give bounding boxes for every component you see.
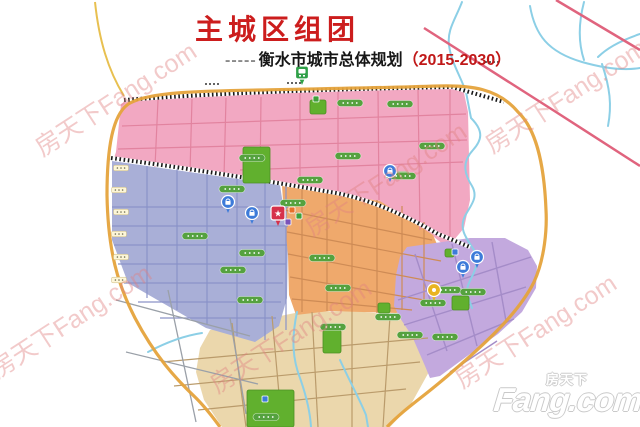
landmark-glyph	[432, 288, 436, 292]
label-glyph-dot	[349, 155, 351, 157]
label-glyph-dot	[239, 269, 241, 271]
label-glyph-dot	[242, 299, 244, 301]
label-glyph-dot	[117, 167, 119, 169]
label-glyph-dot	[344, 287, 346, 289]
place-name-label	[309, 255, 335, 262]
bag-glyph	[387, 170, 392, 174]
label-glyph-dot	[299, 82, 301, 84]
label-glyph-dot	[380, 316, 382, 318]
label-glyph-dot	[263, 416, 265, 418]
label-glyph-dot	[124, 167, 126, 169]
label-glyph-dot	[339, 326, 341, 328]
label-glyph-dot	[209, 83, 211, 85]
label-glyph-dot	[244, 157, 246, 159]
park-area	[243, 147, 270, 183]
place-name-label	[182, 233, 208, 240]
label-glyph-dot	[217, 83, 219, 85]
label-glyph-dot	[229, 188, 231, 190]
place-name-label	[297, 177, 323, 184]
label-glyph-dot	[340, 155, 342, 157]
place-name-label	[419, 143, 445, 150]
label-glyph-dot	[238, 188, 240, 190]
label-glyph-dot	[406, 103, 408, 105]
bag-glyph	[225, 201, 230, 205]
label-glyph-dot	[258, 416, 260, 418]
label-glyph-dot	[479, 291, 481, 293]
label-glyph-dot	[395, 175, 397, 177]
place-name-label	[420, 300, 446, 307]
label-glyph-dot	[118, 233, 120, 235]
highway-corner	[556, 0, 640, 50]
label-glyph-dot	[402, 334, 404, 336]
label-glyph-dot	[409, 175, 411, 177]
label-glyph-dot	[316, 179, 318, 181]
label-glyph-dot	[339, 287, 341, 289]
label-glyph-dot	[302, 179, 304, 181]
label-glyph-dot	[351, 102, 353, 104]
label-glyph-dot	[122, 233, 124, 235]
label-glyph-dot	[253, 252, 255, 254]
label-glyph-dot	[285, 202, 287, 204]
label-glyph-dot	[430, 302, 432, 304]
poi-marker	[313, 96, 319, 102]
place-name-label	[239, 250, 265, 257]
place-name-label	[397, 332, 423, 339]
label-glyph-dot	[429, 145, 431, 147]
train-glyph	[299, 69, 306, 74]
label-glyph-dot	[249, 252, 251, 254]
label-glyph-dot	[258, 157, 260, 159]
label-glyph-dot	[497, 61, 499, 63]
place-name-label	[219, 186, 245, 193]
label-glyph-dot	[465, 291, 467, 293]
label-glyph-dot	[115, 233, 117, 235]
label-glyph-dot	[118, 279, 120, 281]
label-glyph-dot	[334, 326, 336, 328]
label-glyph-dot	[205, 83, 207, 85]
poi-marker	[296, 213, 302, 219]
label-glyph-dot	[196, 235, 198, 237]
label-glyph-dot	[416, 334, 418, 336]
label-glyph-dot	[201, 235, 203, 237]
label-glyph-dot	[449, 289, 451, 291]
label-glyph-dot	[311, 179, 313, 181]
label-glyph-dot	[489, 61, 491, 63]
label-glyph-dot	[272, 416, 274, 418]
label-glyph-dot	[213, 83, 215, 85]
label-glyph-dot	[117, 256, 119, 258]
star-glyph: ★	[274, 209, 282, 219]
place-name-label	[325, 285, 351, 292]
label-glyph-dot	[445, 289, 447, 291]
label-glyph-dot	[290, 202, 292, 204]
label-glyph-dot	[439, 302, 441, 304]
label-glyph-dot	[251, 299, 253, 301]
label-glyph-dot	[256, 299, 258, 301]
bag-glyph	[249, 212, 254, 216]
label-glyph-dot	[485, 61, 487, 63]
label-glyph-dot	[120, 167, 122, 169]
place-name-label	[387, 101, 413, 108]
label-glyph-dot	[330, 326, 332, 328]
label-glyph-dot	[192, 235, 194, 237]
park-area	[378, 303, 390, 313]
label-glyph-dot	[233, 188, 235, 190]
label-glyph-dot	[319, 257, 321, 259]
label-glyph-dot	[287, 82, 289, 84]
screenshot-root: ★ 主城区组团 -----衡水市城市总体规划（2015-2030） 房天下Fan…	[0, 0, 640, 427]
label-glyph-dot	[258, 252, 260, 254]
label-glyph-dot	[446, 336, 448, 338]
label-glyph-dot	[120, 211, 122, 213]
label-glyph-dot	[392, 103, 394, 105]
label-glyph-dot	[294, 202, 296, 204]
place-name-label	[239, 155, 265, 162]
poi-marker	[262, 396, 268, 402]
train-wheel-glyph	[299, 75, 301, 77]
label-glyph-dot	[247, 299, 249, 301]
label-glyph-dot	[425, 302, 427, 304]
bag-glyph	[460, 266, 465, 270]
label-glyph-dot	[295, 82, 297, 84]
label-glyph-dot	[330, 287, 332, 289]
label-glyph-dot	[400, 175, 402, 177]
label-glyph-dot	[424, 145, 426, 147]
poi-marker	[289, 207, 295, 213]
label-glyph-dot	[442, 336, 444, 338]
fang-logo: 房天下 Fang.com	[488, 367, 640, 425]
label-glyph-dot	[230, 269, 232, 271]
label-glyph-dot	[433, 145, 435, 147]
label-glyph-dot	[122, 279, 124, 281]
label-glyph-dot	[437, 336, 439, 338]
label-glyph-dot	[411, 334, 413, 336]
place-name-label	[432, 334, 458, 341]
label-glyph-dot	[307, 179, 309, 181]
label-glyph-dot	[234, 269, 236, 271]
label-glyph-dot	[323, 257, 325, 259]
bag-glyph	[474, 256, 479, 260]
label-glyph-dot	[225, 269, 227, 271]
label-glyph-dot	[474, 291, 476, 293]
place-name-label	[375, 314, 401, 321]
place-name-label	[337, 100, 363, 107]
label-glyph-dot	[397, 103, 399, 105]
label-glyph-dot	[118, 189, 120, 191]
label-glyph-dot	[115, 189, 117, 191]
label-glyph-dot	[335, 287, 337, 289]
label-glyph-dot	[124, 211, 126, 213]
place-name-label	[220, 267, 246, 274]
label-glyph-dot	[244, 252, 246, 254]
label-glyph-dot	[122, 189, 124, 191]
label-glyph-dot	[249, 157, 251, 159]
place-name-label	[320, 324, 346, 331]
park-area	[452, 296, 469, 310]
road-northwest	[95, 2, 124, 96]
label-glyph-dot	[493, 61, 495, 63]
label-glyph-dot	[356, 102, 358, 104]
label-glyph-dot	[454, 289, 456, 291]
label-glyph-dot	[354, 155, 356, 157]
label-glyph-dot	[342, 102, 344, 104]
label-glyph-dot	[117, 211, 119, 213]
label-glyph-dot	[120, 256, 122, 258]
label-glyph-dot	[401, 103, 403, 105]
label-glyph-dot	[328, 257, 330, 259]
train-wheel-glyph	[303, 75, 305, 77]
label-glyph-dot	[253, 157, 255, 159]
label-glyph-dot	[394, 316, 396, 318]
label-glyph-dot	[407, 334, 409, 336]
poi-marker	[285, 219, 291, 225]
park-area	[323, 330, 341, 353]
label-glyph-dot	[345, 155, 347, 157]
place-name-label	[253, 414, 279, 421]
poi-marker	[452, 249, 458, 255]
label-glyph-dot	[314, 257, 316, 259]
label-glyph-dot	[187, 235, 189, 237]
label-glyph-dot	[299, 202, 301, 204]
label-glyph-dot	[389, 316, 391, 318]
label-glyph-dot	[325, 326, 327, 328]
label-glyph-dot	[404, 175, 406, 177]
label-glyph-dot	[224, 188, 226, 190]
label-glyph-dot	[470, 291, 472, 293]
label-glyph-dot	[438, 145, 440, 147]
label-glyph-dot	[115, 279, 117, 281]
label-glyph-dot	[291, 82, 293, 84]
label-glyph-dot	[451, 336, 453, 338]
place-name-label	[280, 200, 306, 207]
label-glyph-dot	[124, 256, 126, 258]
fang-logo-wordmark: Fang.com	[492, 381, 640, 419]
park-area	[247, 390, 294, 427]
label-glyph-dot	[347, 102, 349, 104]
place-name-label	[335, 153, 361, 160]
label-glyph-dot	[434, 302, 436, 304]
label-glyph-dot	[385, 316, 387, 318]
label-glyph-dot	[267, 416, 269, 418]
place-name-label	[237, 297, 263, 304]
place-name-label	[460, 289, 486, 296]
city-plan-map: ★	[0, 0, 640, 427]
